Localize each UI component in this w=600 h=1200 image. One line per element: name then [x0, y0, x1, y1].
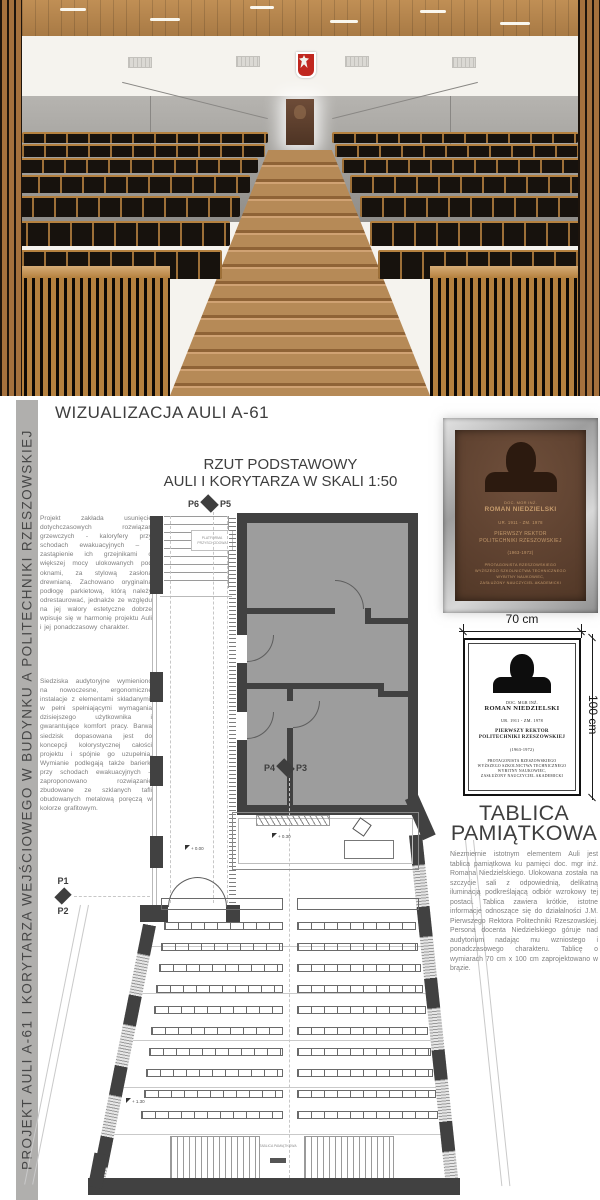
- bench: [297, 964, 421, 972]
- plaque-role-2: POLITECHNIKI RZESZOWSKIEJ: [455, 538, 586, 544]
- partition-wall: [378, 691, 408, 697]
- seat-row: [332, 132, 578, 143]
- elevation-label: + 1.30: [132, 1099, 145, 1104]
- drawing-desc-4: ZASŁUŻONY NAUCZYCIEL AKADEMICKI: [465, 774, 579, 778]
- wood-slat-wall-right: [578, 0, 600, 396]
- seat-row: [20, 158, 258, 173]
- seat-row: [370, 221, 596, 246]
- door-opening: [237, 712, 247, 740]
- desk-rail: [0, 266, 170, 278]
- plaque-dates: UR. 1911 - ZM. 1978: [455, 520, 586, 525]
- bench-row: [154, 1006, 426, 1014]
- plan-wall-segment: [150, 836, 163, 868]
- dimension-line: [160, 596, 232, 597]
- elevation-mark: + 0.30: [272, 833, 291, 839]
- marker-p5-label: P5: [220, 499, 231, 509]
- bench: [164, 922, 283, 930]
- wall-vent: [128, 57, 152, 68]
- project-title-bar: PROJEKT AULI A-61 I KORYTARZA WEJŚCIOWEG…: [16, 400, 38, 1200]
- plaque-tenure: (1963-1972): [455, 550, 586, 555]
- bench: [141, 1111, 283, 1119]
- section-marker-p4-p3: P4 P3: [264, 760, 307, 775]
- bench: [149, 1048, 283, 1056]
- section-marker-icon: [276, 758, 295, 777]
- memorial-plaque-photo: DOC. MGR INŻ. ROMAN NIEDZIELSKI UR. 1911…: [443, 418, 598, 613]
- wall-cladding-hatch: [170, 1136, 260, 1180]
- wall-vent: [345, 56, 369, 67]
- marker-p3-label: P3: [296, 763, 307, 773]
- marker-p1-label: P1: [52, 876, 74, 886]
- bench: [151, 1027, 283, 1035]
- plaque-prefix: DOC. MGR INŻ.: [455, 500, 586, 505]
- auditorium-visualization-photo: [0, 0, 600, 396]
- door-swing-arc: [293, 701, 320, 728]
- plan-wall-segment: [150, 672, 163, 702]
- seat-row: [10, 196, 240, 217]
- plaque-portrait: [294, 105, 306, 119]
- plaque-face: DOC. MGR INŻ. ROMAN NIEDZIELSKI UR. 1911…: [455, 430, 586, 601]
- front-desk-right: [430, 266, 600, 396]
- plan-wall-segment: [150, 756, 163, 786]
- wall-cladding-hatch: [304, 1136, 394, 1180]
- door-swing-arc: [247, 712, 274, 739]
- bench: [297, 1048, 431, 1056]
- desk-rail: [430, 266, 600, 278]
- dimension-line: [32, 905, 89, 1185]
- section-marker-icon: [54, 887, 71, 904]
- description-paragraph-1: Projekt zakłada usunięcie dotychczasowyc…: [40, 514, 152, 632]
- bench: [159, 964, 283, 972]
- bench: [156, 985, 283, 993]
- wood-ceiling: [22, 0, 578, 36]
- memorial-paragraph: Niezmiernie istotnym elementem Auli jest…: [450, 850, 598, 974]
- bench-row: [156, 985, 423, 993]
- bench: [161, 943, 283, 951]
- plaque-name: ROMAN NIEDZIELSKI: [455, 506, 586, 513]
- plan-staircase: [164, 516, 229, 588]
- bench-row: [141, 1111, 438, 1119]
- extension-line: [581, 624, 582, 638]
- plan-axis-line: [213, 512, 214, 908]
- drawing-portrait-shoulders: [493, 677, 551, 693]
- plaque-desc-4: ZASŁUŻONY NAUCZYCIEL AKADEMICKI: [455, 581, 586, 585]
- drawing-dates: UR. 1911 - ZM. 1978: [465, 718, 579, 723]
- plan-wall-bottom: [88, 1178, 460, 1195]
- bench-row: [159, 964, 421, 972]
- plaque-desc-1: PROTAGONISTA RZESZOWSKIEGO: [455, 563, 586, 567]
- marker-p4-label: P4: [264, 763, 275, 773]
- marker-p6-label: P6: [188, 499, 199, 509]
- drawing-tenure: (1963-1972): [465, 747, 579, 752]
- drawing-desc-2: WYŻSZEGO SZKOLNICTWA TECHNICZNEGO: [465, 764, 579, 768]
- plaque-role-1: PIERWSZY REKTOR: [455, 531, 586, 537]
- section-marker-icon: [200, 494, 219, 513]
- ceiling-light: [250, 6, 274, 9]
- plaque-desc-3: WYBITNY NAUKOWIEC,: [455, 575, 586, 579]
- ceiling-light: [330, 20, 358, 23]
- partition-wall: [365, 618, 408, 624]
- bench: [297, 922, 416, 930]
- drawing-role-1: PIERWSZY REKTOR: [465, 729, 579, 734]
- bench: [146, 1069, 283, 1077]
- bench: [297, 943, 419, 951]
- bench: [297, 898, 419, 910]
- memorial-title-line1: TABLICA: [448, 803, 600, 823]
- door-opening: [237, 635, 247, 663]
- stage-stairs-hatch: [256, 815, 330, 826]
- wood-slat-wall-left: [0, 0, 22, 396]
- ceiling-light: [500, 22, 530, 25]
- door-swing-arc: [247, 635, 274, 662]
- front-desk-left: [0, 266, 170, 396]
- plan-plaque-symbol: [270, 1158, 286, 1163]
- presentation-board: PROJEKT AULI A-61 I KORYTARZA WEJŚCIOWEG…: [0, 0, 600, 1200]
- drawing-role-2: POLITECHNIKI RZESZOWSKIEJ: [465, 735, 579, 740]
- section-marker-p1-p2: P1 P2: [52, 876, 74, 916]
- plaque-technical-drawing: DOC. MGR INŻ. ROMAN NIEDZIELSKI UR. 1911…: [463, 638, 581, 796]
- dimension-line-vertical: [592, 634, 593, 800]
- bench: [297, 985, 424, 993]
- door-swing-arc: [335, 580, 364, 609]
- marker-p2-label: P2: [52, 906, 74, 916]
- bench-row: [146, 1069, 433, 1077]
- polish-eagle-emblem: [296, 52, 316, 78]
- plan-title-line2: AULI I KORYTARZA W SKALI 1:50: [158, 474, 403, 491]
- bench-row: [164, 922, 416, 930]
- partition-wall: [247, 683, 378, 689]
- bench: [161, 898, 283, 910]
- section-marker-p6-p5: P6 P5: [188, 496, 231, 511]
- ceiling-light: [60, 8, 86, 11]
- seat-row: [22, 144, 265, 157]
- memorial-section-title: TABLICA PAMIĄTKOWA: [448, 803, 600, 844]
- seat-row: [360, 196, 590, 217]
- bench: [154, 1006, 283, 1014]
- plan-title-line1: RZUT PODSTAWOWY: [158, 457, 403, 474]
- elevation-mark: + 0.00: [185, 845, 204, 851]
- bench-row: [149, 1048, 431, 1056]
- plaque-portrait-shoulders: [485, 472, 557, 492]
- memorial-plaque-on-wall: [286, 99, 314, 145]
- bench-row: [144, 1090, 436, 1098]
- description-paragraph-2: Siedziska audytoryjne wymieniono na nowo…: [40, 677, 152, 813]
- visualization-title: WIZUALIZACJA AULI A-61: [55, 403, 269, 423]
- elevation-label: + 0.00: [191, 846, 204, 851]
- plan-title: RZUT PODSTAWOWY AULI I KORYTARZA W SKALI…: [158, 457, 403, 491]
- wall-vent: [236, 56, 260, 67]
- partition-wall: [287, 689, 293, 701]
- seat-row: [350, 175, 584, 193]
- elevation-mark: + 1.30: [126, 1098, 145, 1104]
- bench: [297, 1111, 439, 1119]
- partition-wall: [247, 608, 335, 614]
- seat-row: [16, 175, 250, 193]
- extension-line: [463, 624, 464, 638]
- ceiling-light: [150, 18, 180, 21]
- plan-axis-line: [227, 516, 228, 908]
- plaque-desc-2: WYŻSZEGO SZKOLNICTWA TECHNICZNEGO: [455, 569, 586, 573]
- bench: [144, 1090, 283, 1098]
- plan-axis-line: [170, 516, 171, 908]
- seat-row: [4, 221, 230, 246]
- bench: [297, 1027, 429, 1035]
- drawing-desc-1: PROTAGONISTA RZESZOWSKIEGO: [465, 759, 579, 763]
- bench: [297, 1090, 436, 1098]
- dimension-line-horizontal: [459, 631, 586, 632]
- bench-row: [151, 1027, 428, 1035]
- seat-row: [335, 144, 578, 157]
- seat-row: [342, 158, 580, 173]
- bench: [297, 1069, 434, 1077]
- memorial-title-line2: PAMIĄTKOWA: [448, 823, 600, 843]
- bench-row: [161, 898, 419, 910]
- bench: [297, 1006, 426, 1014]
- drawing-desc-3: WYBITNY NAUKOWIEC,: [465, 769, 579, 773]
- plan-plaque-label: TABLICA PAMIĄTKOWA: [252, 1144, 304, 1148]
- lecturer-table: [344, 840, 394, 859]
- wall-vent: [452, 57, 476, 68]
- plaque-height-dimension: 100 cm: [586, 695, 600, 734]
- bench-row: [161, 943, 418, 951]
- plaque-width-dimension: 70 cm: [463, 612, 581, 626]
- seat-row: [22, 132, 268, 143]
- ceiling-light: [420, 10, 446, 13]
- drawing-name: ROMAN NIEDZIELSKI: [465, 705, 579, 712]
- plan-wall-segment: [150, 516, 163, 594]
- project-title: PROJEKT AULI A-61 I KORYTARZA WEJŚCIOWEG…: [16, 400, 38, 1200]
- elevation-label: + 0.30: [278, 834, 291, 839]
- plan-axis-line: [74, 896, 150, 897]
